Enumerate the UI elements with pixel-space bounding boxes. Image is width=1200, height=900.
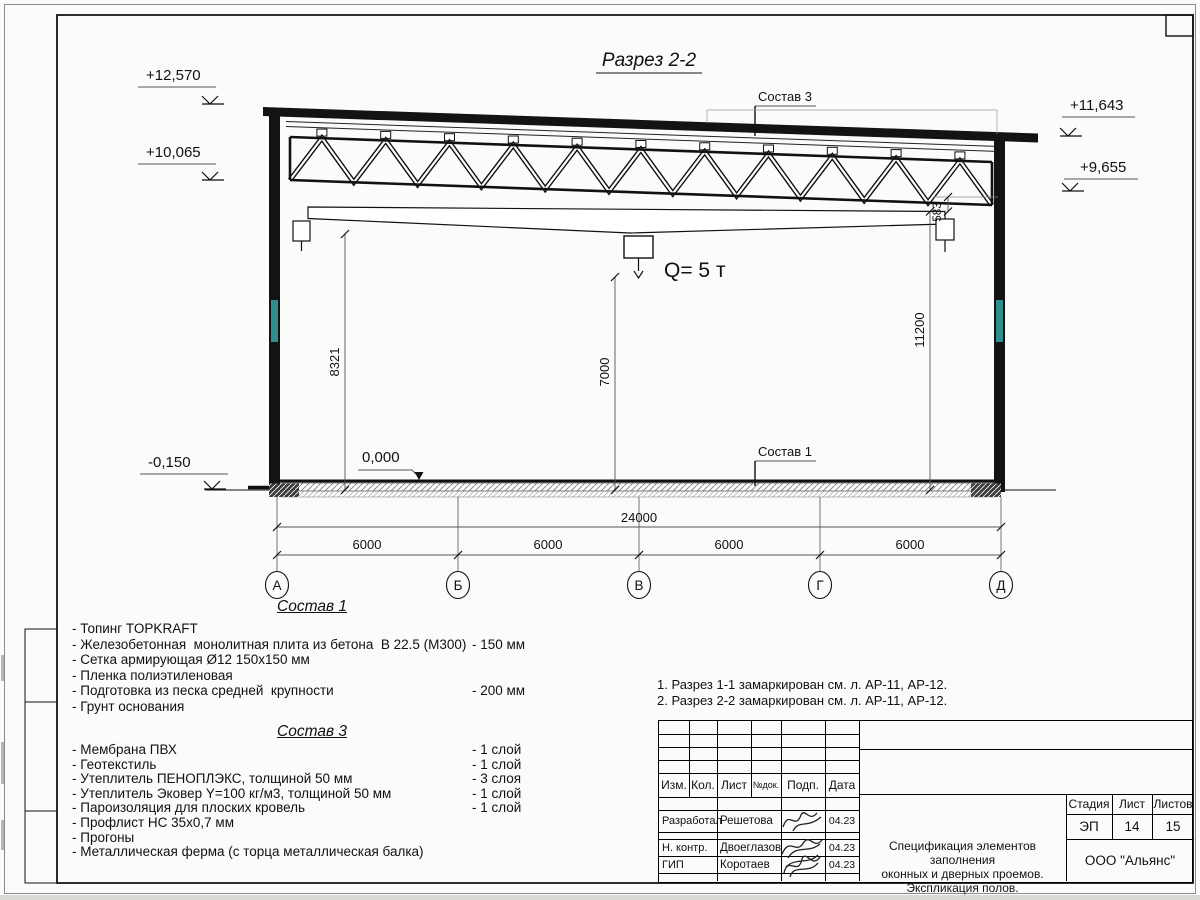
vertical-dimensions: 8321 7000 11200 583: [327, 193, 998, 494]
svg-text:+11,643: +11,643: [1070, 97, 1124, 114]
stamp-role: Разработал: [659, 810, 717, 832]
elevation-mark-left-1: +12,570: [138, 67, 224, 104]
dim-583: 583: [932, 193, 998, 222]
stamp-role: Н. контр.: [659, 839, 717, 856]
elevation-mark-left-3: -0,150: [140, 454, 228, 489]
list-item: - Пленка полиэтиленовая: [72, 668, 632, 684]
axis-label-d: Д: [996, 578, 1005, 593]
note-line: 2. Разрез 2-2 замаркирован см. л. АР-11,…: [657, 693, 947, 709]
dim-11200: 11200: [912, 208, 934, 495]
footing-left: [269, 484, 299, 498]
list-item: - Топинг TOPKRAFT: [72, 621, 632, 637]
crane-bridge: Q= 5 т: [293, 207, 954, 282]
stamp-name: Решетова: [717, 810, 781, 832]
bottom-dimensions: 24000 6000 6000 6000 6000 А Б В Г Д: [266, 497, 1013, 599]
svg-text:+12,570: +12,570: [146, 67, 201, 84]
crane-hook: [634, 258, 643, 278]
svg-text:Разрез 2-2: Разрез 2-2: [602, 50, 697, 71]
crane-end-truck-left: [293, 221, 310, 241]
title-block: Изм. Кол. Лист №док. Подп. Дата Разработ…: [658, 720, 1193, 883]
section-title: Разрез 2-2: [596, 50, 702, 73]
list-item: - Мембрана ПВХ- 1 слой: [72, 743, 632, 758]
svg-text:8321: 8321: [327, 348, 342, 377]
svg-text:6000: 6000: [896, 537, 925, 552]
svg-text:+9,655: +9,655: [1080, 159, 1126, 176]
margin-stamp-boxes: [25, 629, 57, 883]
stamp-header-list: Лист: [717, 773, 751, 797]
stamp-sheets-value: 15: [1152, 814, 1194, 839]
list-item: - Подготовка из песка средней крупности-…: [72, 683, 632, 699]
opening-mark-left: [271, 300, 278, 342]
columns: [269, 111, 1005, 492]
crane-trolley: [624, 236, 653, 258]
crane-load-label: Q= 5 т: [664, 259, 726, 282]
list-item: - Профлист НС 35х0,7 мм: [72, 816, 632, 831]
svg-text:7000: 7000: [597, 358, 612, 387]
opening-mark-right: [996, 300, 1003, 342]
signature: [778, 849, 826, 879]
axis-label-g: Г: [816, 578, 824, 593]
svg-text:6000: 6000: [534, 537, 563, 552]
stamp-name: Двоеглазов: [717, 839, 781, 856]
axis-label-a: А: [272, 578, 281, 593]
stamp-sheet-value: 14: [1112, 814, 1152, 839]
stamp-role: ГИП: [659, 856, 717, 873]
note-line: 1. Разрез 1-1 замаркирован см. л. АР-11,…: [657, 677, 947, 693]
list-item: - Утеплитель ПЕНОПЛЭКС, толщиной 50 мм- …: [72, 772, 632, 787]
format-box: [1166, 15, 1193, 36]
elevation-mark-right-1: +11,643: [1060, 97, 1135, 136]
svg-text:0,000: 0,000: [362, 449, 400, 466]
elevation-mark-left-2: +10,065: [138, 144, 224, 180]
stamp-name: Коротаев: [717, 856, 781, 873]
svg-text:Состав 3: Состав 3: [758, 89, 812, 104]
stamp-date: 04.23: [825, 839, 859, 856]
svg-text:+10,065: +10,065: [146, 144, 201, 161]
stamp-header-izm: Изм.: [659, 773, 689, 797]
stamp-stage-value: ЭП: [1066, 814, 1112, 839]
axis-label-v: В: [634, 578, 643, 593]
stamp-sheets-header: Листов: [1152, 794, 1194, 814]
page-bottom-edge: [0, 895, 1200, 900]
elevation-mark-right-2: +9,655: [1062, 159, 1138, 191]
svg-text:11200: 11200: [912, 312, 927, 347]
margin-illegible-marks: [1, 655, 4, 850]
drawing-sheet: { "drawing": { "section_title": "Разрез …: [0, 0, 1200, 900]
stamp-sheet-header: Лист: [1112, 794, 1152, 814]
footing-right: [971, 484, 1001, 498]
list-item: - Геотекстиль- 1 слой: [72, 758, 632, 773]
svg-text:Состав 1: Состав 1: [758, 444, 812, 459]
stamp-header-kol: Кол.: [689, 773, 717, 797]
svg-text:24000: 24000: [621, 510, 657, 525]
list-item: - Утеплитель Эковер Y=100 кг/м3, толщино…: [72, 787, 632, 802]
dim-8321: 8321: [327, 230, 349, 494]
stamp-organization: ООО "Альянс": [1066, 839, 1194, 881]
zero-level-mark: 0,000: [358, 449, 424, 480]
list-item: - Прогоны: [72, 831, 632, 846]
sostav1-heading: Состав 1: [232, 598, 392, 616]
sostav3-list: - Мембрана ПВХ- 1 слой - Геотекстиль- 1 …: [72, 743, 632, 860]
stamp-header-ndok: №док.: [751, 773, 781, 797]
stamp-date: 04.23: [825, 810, 859, 832]
stamp-stage-header: Стадия: [1066, 794, 1112, 814]
svg-text:-0,150: -0,150: [148, 454, 191, 471]
sheet-notes: 1. Разрез 1-1 замаркирован см. л. АР-11,…: [657, 677, 947, 708]
svg-text:6000: 6000: [353, 537, 382, 552]
list-item: - Пароизоляция для плоских кровель- 1 сл…: [72, 801, 632, 816]
svg-text:6000: 6000: [715, 537, 744, 552]
svg-text:583: 583: [932, 202, 944, 221]
list-item: - Металлическая ферма (с торца металличе…: [72, 845, 632, 860]
axis-label-b: Б: [454, 578, 463, 593]
stamp-header-podp: Подп.: [781, 773, 825, 797]
sostav1-list: - Топинг TOPKRAFT - Железобетонная монол…: [72, 621, 632, 715]
dim-7000: 7000: [597, 273, 619, 494]
list-item: - Железобетонная монолитная плита из бет…: [72, 637, 632, 653]
list-item: - Грунт основания: [72, 699, 632, 715]
stamp-header-data: Дата: [825, 773, 859, 797]
sostav3-heading: Состав 3: [232, 723, 392, 741]
stamp-date: 04.23: [825, 856, 859, 873]
signature: [779, 805, 827, 835]
stamp-doc-title: Спецификация элементов заполнения оконны…: [859, 839, 1066, 895]
list-item: - Сетка армирующая Ø12 150x150 мм: [72, 652, 632, 668]
floor-slab: [205, 481, 1056, 497]
